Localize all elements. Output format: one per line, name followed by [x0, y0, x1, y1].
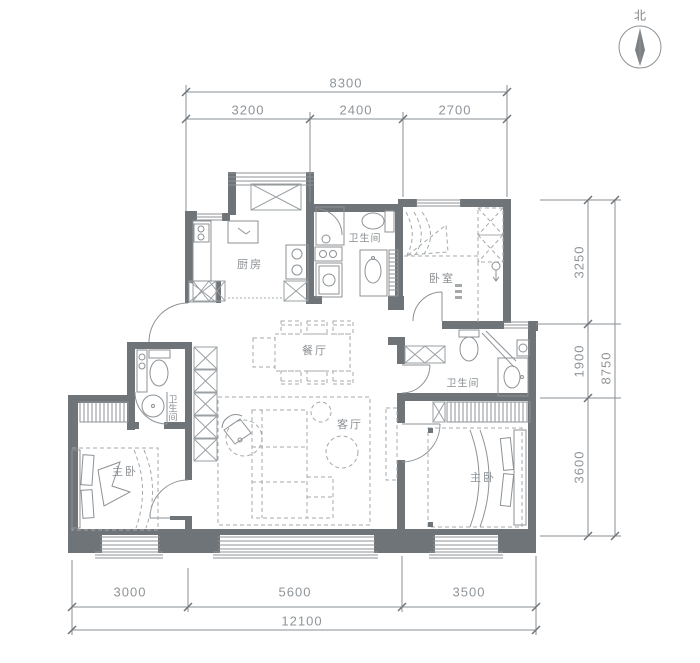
entry-door-arc: [149, 303, 188, 342]
floor-plan-drawing: [0, 0, 700, 663]
left-bedroom-furniture: [72, 448, 158, 530]
right-bedroom-door: [402, 424, 440, 462]
room-label-dining: 餐厅: [302, 342, 328, 358]
dim-bottom-seg-2: 5600: [279, 585, 312, 600]
doors: [135, 292, 442, 520]
hall-cabinets: [194, 347, 217, 461]
left-bath-fixtures: [137, 350, 170, 417]
walls: [68, 172, 538, 553]
dim-bottom-seg-3: 3500: [453, 585, 486, 600]
north-label: 北: [634, 7, 646, 24]
room-label-bath-top: 卫生间: [349, 230, 382, 245]
dim-right-total: 8750: [599, 352, 614, 385]
dim-right-seg-3: 3600: [572, 451, 587, 484]
room-label-kitchen: 厨房: [237, 256, 263, 272]
left-bedroom-door: [150, 480, 188, 518]
dim-top-total: 8300: [330, 76, 363, 91]
top-bath-fixtures: [315, 207, 394, 297]
dim-right-seg-2: 1900: [572, 345, 587, 378]
left-bath-door: [135, 392, 167, 424]
floor-plan-canvas: 北 8300 3200 2400 2700 3250 1900 3600 875…: [0, 0, 700, 663]
room-label-bath-left: 卫生间: [168, 395, 177, 422]
room-label-bedroom-top: 卧室: [429, 270, 455, 286]
room-label-living: 客厅: [337, 416, 363, 432]
right-bedroom-furniture: [386, 408, 526, 527]
right-bath-door: [402, 365, 430, 393]
top-bedroom-door: [413, 292, 442, 321]
dim-top-seg-1: 3200: [232, 103, 265, 118]
room-label-bath-right: 卫生间: [447, 375, 480, 390]
dim-top-seg-2: 2400: [340, 103, 373, 118]
compass: [619, 26, 661, 68]
dim-top-seg-3: 2700: [439, 103, 472, 118]
dim-bottom-seg-1: 3000: [114, 585, 147, 600]
dim-bottom-total: 12100: [281, 614, 322, 629]
door-handle: [170, 516, 188, 520]
cabinet-x-boxes: [189, 184, 445, 461]
top-bedroom-furniture: [404, 208, 503, 322]
room-label-bedroom-left: 主卧: [112, 463, 138, 479]
dim-right-seg-1: 3250: [572, 246, 587, 279]
room-label-bedroom-right: 主卧: [470, 469, 496, 485]
